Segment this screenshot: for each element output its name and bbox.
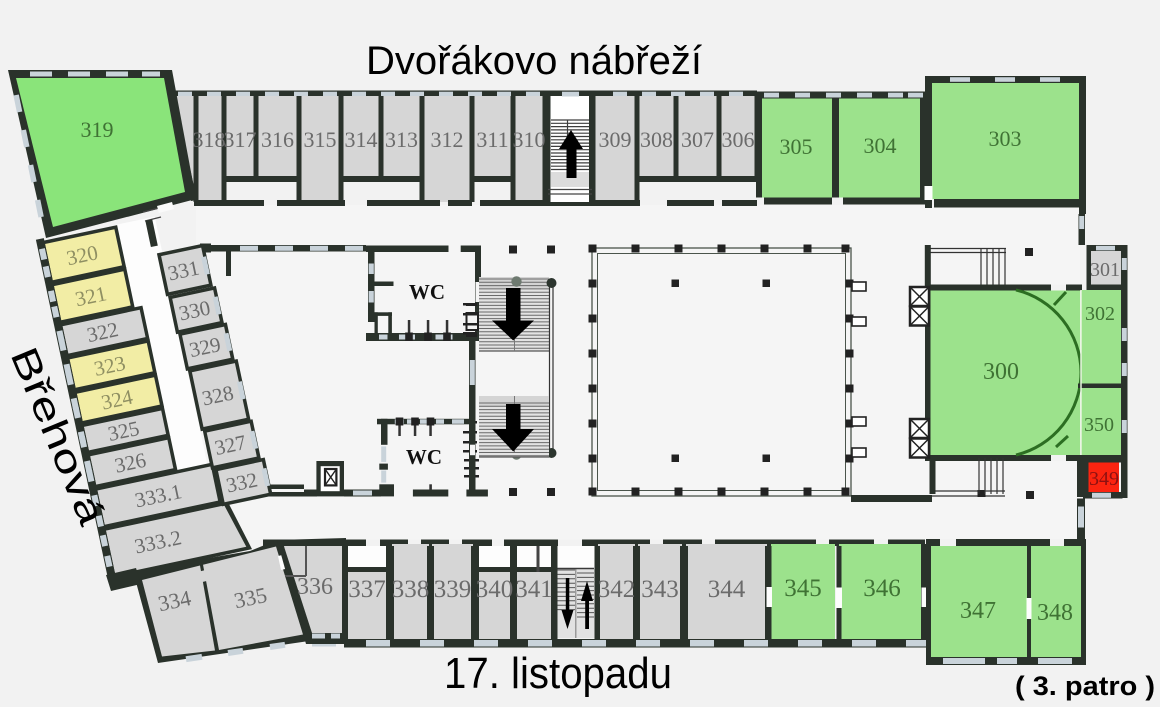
svg-text:343: 343 — [641, 576, 679, 603]
svg-text:WC: WC — [406, 445, 442, 469]
svg-text:306: 306 — [722, 127, 755, 152]
svg-text:319: 319 — [81, 117, 114, 142]
svg-text:302: 302 — [1085, 303, 1115, 325]
svg-text:346: 346 — [863, 575, 901, 602]
svg-text:340: 340 — [476, 576, 514, 603]
svg-text:339: 339 — [434, 576, 472, 603]
svg-text:WC: WC — [409, 280, 445, 304]
svg-text:( 3. patro ): ( 3. patro ) — [1015, 671, 1155, 701]
svg-text:342: 342 — [598, 576, 636, 603]
svg-text:316: 316 — [261, 127, 294, 152]
svg-text:315: 315 — [304, 127, 337, 152]
svg-text:313: 313 — [385, 127, 418, 152]
svg-text:305: 305 — [780, 134, 813, 159]
svg-text:Dvořákovo nábřeží: Dvořákovo nábřeží — [366, 39, 702, 83]
svg-text:348: 348 — [1037, 600, 1073, 626]
svg-text:307: 307 — [681, 127, 714, 152]
svg-text:309: 309 — [599, 127, 632, 152]
svg-text:312: 312 — [431, 127, 464, 152]
svg-text:341: 341 — [515, 576, 553, 603]
svg-text:314: 314 — [345, 127, 378, 152]
svg-text:300: 300 — [983, 359, 1019, 385]
svg-text:303: 303 — [989, 126, 1022, 151]
svg-text:336: 336 — [297, 574, 333, 600]
svg-text:317: 317 — [224, 127, 257, 152]
svg-text:349: 349 — [1089, 468, 1119, 490]
svg-text:304: 304 — [864, 133, 897, 158]
svg-text:338: 338 — [392, 576, 430, 603]
svg-text:301: 301 — [1090, 259, 1120, 281]
svg-text:344: 344 — [708, 576, 746, 603]
svg-text:310: 310 — [513, 127, 546, 152]
svg-text:337: 337 — [348, 576, 386, 603]
svg-text:350: 350 — [1084, 414, 1114, 436]
svg-text:308: 308 — [640, 127, 673, 152]
svg-text:311: 311 — [476, 127, 508, 152]
svg-text:17. listopadu: 17. listopadu — [444, 649, 672, 698]
svg-text:318: 318 — [193, 127, 226, 152]
svg-text:347: 347 — [960, 598, 996, 624]
svg-text:345: 345 — [784, 575, 822, 602]
